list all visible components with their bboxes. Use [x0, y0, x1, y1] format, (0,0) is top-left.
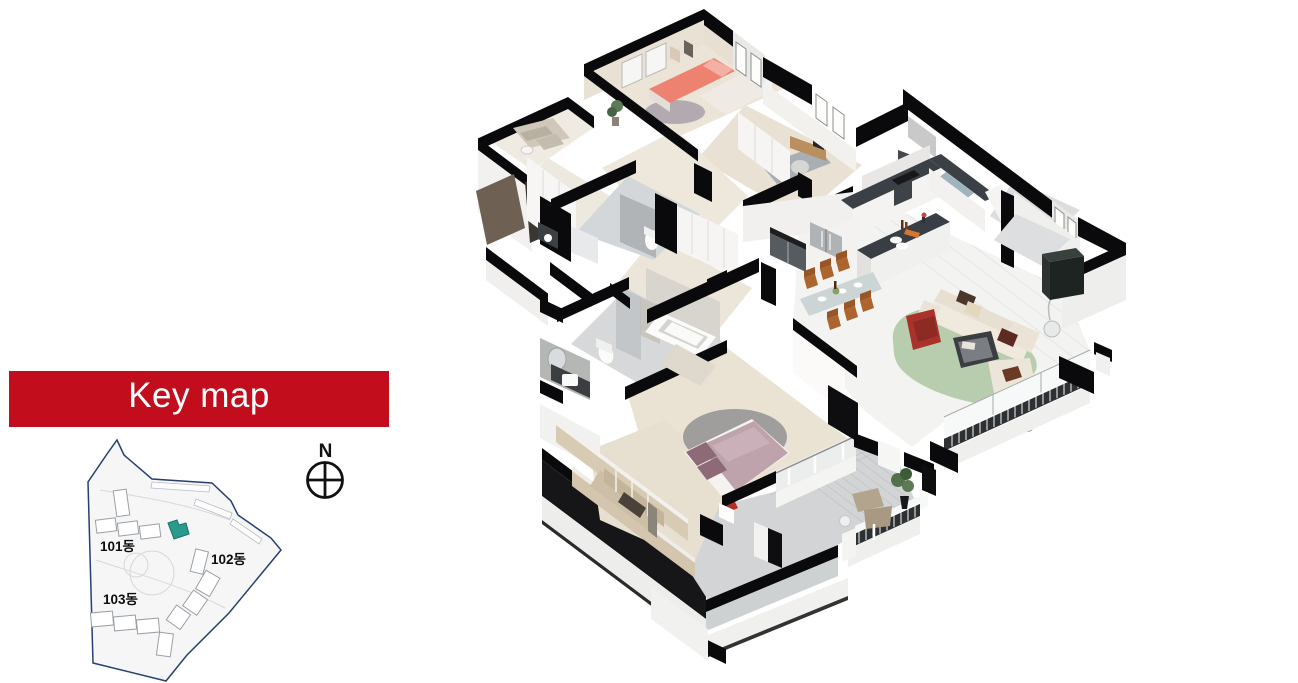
- svg-text:N: N: [319, 441, 333, 462]
- svg-text:101동: 101동: [100, 539, 135, 554]
- svg-text:102동: 102동: [211, 552, 246, 567]
- svg-text:103동: 103동: [103, 592, 138, 607]
